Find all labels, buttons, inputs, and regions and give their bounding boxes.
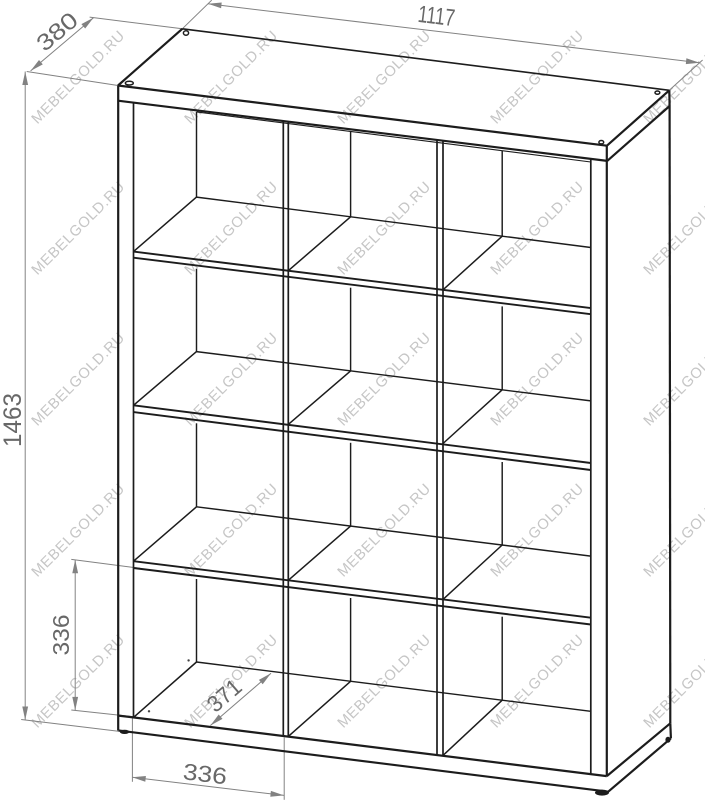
- svg-text:336: 336: [182, 758, 229, 789]
- svg-text:1117: 1117: [416, 1, 456, 32]
- svg-text:336: 336: [48, 615, 74, 656]
- svg-text:1463: 1463: [0, 393, 27, 447]
